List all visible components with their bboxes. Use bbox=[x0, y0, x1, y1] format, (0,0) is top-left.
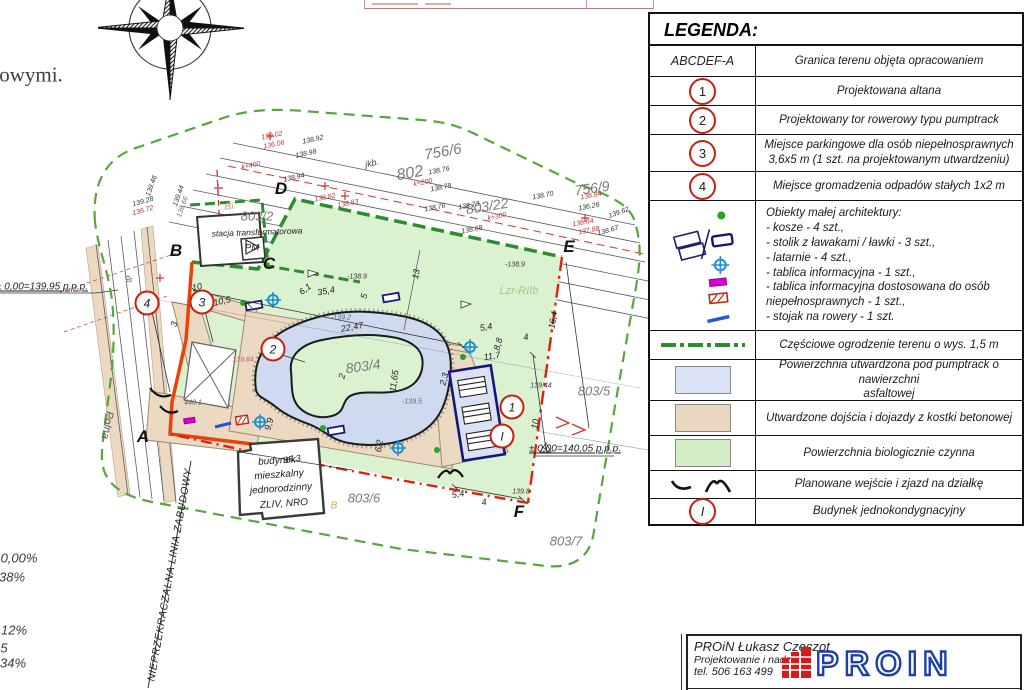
parcel-label: 756/6 bbox=[423, 140, 463, 163]
legend-row-12: IBudynek jednokondygnacyjny bbox=[650, 499, 1022, 524]
plan-marker-1: 1 bbox=[500, 395, 525, 420]
elevation-label: 138.67 bbox=[597, 225, 620, 237]
legend-description: Utwardzone dojścia i dojazdy z kostki be… bbox=[756, 401, 1022, 435]
legend-symbol bbox=[650, 471, 756, 498]
elevation-label: 139.62 bbox=[608, 206, 631, 220]
table-symbol bbox=[674, 229, 710, 260]
dimension-label: 9,9 bbox=[263, 417, 276, 432]
boundary-corner-letter: E bbox=[563, 237, 574, 257]
elevation-label: 139.44 bbox=[530, 383, 551, 390]
elevation-label: 136.26 bbox=[578, 202, 600, 213]
elevation-label: 138.92 bbox=[302, 134, 324, 145]
elevation-label: 139.8 bbox=[512, 489, 530, 496]
dimension-label: 5,4 bbox=[479, 321, 493, 333]
legend-symbol: 1 bbox=[650, 77, 756, 105]
plan-note: ± 0,00=139,95 p.p.p. bbox=[0, 282, 88, 293]
legend-symbol: 2 bbox=[650, 106, 756, 134]
dimension-label: 10 bbox=[529, 418, 541, 430]
boundary-corner-letter: F bbox=[514, 502, 524, 522]
dimension-label: 5,4 bbox=[451, 488, 465, 500]
legend-description: Obiekty małej architektury:- kosze - 4 s… bbox=[756, 201, 1022, 330]
entrance-symbol bbox=[664, 472, 742, 498]
bottom-left-value: 34% bbox=[0, 656, 26, 671]
elevation-label: 138.70 bbox=[532, 191, 554, 202]
boundary-corner-letter: B bbox=[170, 241, 182, 261]
plan-note: jednorodzinny bbox=[250, 481, 313, 496]
plan-note: ZLIV, NRO bbox=[260, 497, 309, 511]
plan-note: Bi bbox=[225, 202, 234, 213]
site-plan-sheet: ABCDEF756/6802756/9803/22803/2803/4803/5… bbox=[0, 0, 1024, 690]
dimension-label: 6,1 bbox=[297, 281, 313, 297]
elevation-label: 138.76 bbox=[428, 166, 450, 177]
elevation-label: 137.88 bbox=[578, 226, 600, 237]
plan-marker-4: 4 bbox=[135, 291, 160, 316]
dimension-label: 22,47 bbox=[340, 320, 364, 334]
proin-logo: PROIN bbox=[780, 644, 1018, 682]
building-icon bbox=[782, 647, 811, 678]
legend-description: Projektowany tor rowerowy typu pumptrack bbox=[756, 106, 1022, 134]
plan-marker-2: 2 bbox=[261, 337, 286, 362]
dimension-label: 11,65 bbox=[388, 369, 401, 392]
boundary-corner-letter: C bbox=[263, 254, 275, 274]
dimension-label: 3 bbox=[169, 320, 180, 327]
accessible-board-symbol bbox=[709, 292, 728, 303]
legend-row-8: Powierzchnia utwardzona pod pumptrack o … bbox=[650, 360, 1022, 401]
elevation-label: 139.84 bbox=[232, 357, 253, 364]
dimension-label: 11,7 bbox=[483, 350, 501, 363]
elevation-label: 138.98 bbox=[295, 148, 317, 159]
elevation-label: 138.83 bbox=[337, 199, 359, 210]
plan-note: mieszkalny bbox=[254, 468, 304, 482]
legend-symbol bbox=[650, 401, 756, 435]
plan-marker-i: I bbox=[490, 424, 515, 449]
elevation-label: -139.2 bbox=[331, 315, 351, 322]
titleblock: PROiN Łukasz Czeczot Projektowanie i nad… bbox=[686, 634, 1022, 690]
dimension-label: 4 bbox=[523, 332, 530, 343]
parcel-label: 803/6 bbox=[348, 491, 381, 506]
legend-row-6: Obiekty małej architektury:- kosze - 4 s… bbox=[650, 201, 1022, 331]
legend-description: Granica terenu objęta opracowaniem bbox=[756, 46, 1022, 76]
dimension-label: 35,4 bbox=[316, 285, 335, 298]
bike-rack-symbol bbox=[707, 316, 729, 321]
elevation-label: 139.46 bbox=[145, 175, 159, 198]
legend-symbol: 4 bbox=[650, 172, 756, 200]
boundary-corner-letter: A bbox=[137, 427, 149, 447]
legend-description: Powierzchnia utwardzona pod pumptrack o … bbox=[756, 360, 1022, 400]
titleblock-outer-line bbox=[681, 634, 682, 690]
parcel-label: 803/2 bbox=[241, 209, 274, 224]
legend-symbol bbox=[650, 201, 756, 330]
bottom-left-value: 12% bbox=[1, 623, 27, 638]
legend-symbol bbox=[650, 331, 756, 359]
elevation-label: 136.06 bbox=[263, 140, 285, 151]
elevation-label: 440.1 bbox=[184, 400, 202, 407]
plan-note: PM bbox=[245, 243, 259, 254]
elevation-label: -138.9 bbox=[505, 262, 525, 269]
bottom-left-value: 38% bbox=[0, 570, 25, 585]
legend-row-1: ABCDEF-AGranica terenu objęta opracowani… bbox=[650, 46, 1022, 77]
plan-marker-3: 3 bbox=[190, 290, 215, 315]
elevation-label: 138.76 bbox=[424, 203, 446, 214]
legend-panel: LEGENDA: ABCDEF-AGranica terenu objęta o… bbox=[648, 12, 1024, 526]
lantern-symbol bbox=[711, 256, 729, 274]
dimension-label: 10,5 bbox=[212, 294, 231, 308]
plan-note: budynek bbox=[258, 454, 296, 468]
logo-text: PROIN bbox=[816, 645, 954, 682]
plan-note: ± 0,00=140,05 p.p.p. bbox=[529, 444, 621, 455]
paragraph-fragment: owymi. bbox=[0, 63, 63, 88]
legend-description: Planowane wejście i zjazd na działkę bbox=[756, 471, 1022, 498]
elevation-label: 138.82 bbox=[314, 193, 336, 204]
small-architecture-symbols bbox=[650, 203, 755, 329]
plan-note: dr bbox=[123, 274, 135, 285]
plan-note: NIEPRZEKRACZALNA LINIA ZABUDOWY bbox=[145, 468, 194, 683]
legend-row-3: 2Projektowany tor rowerowy typu pumptrac… bbox=[650, 106, 1022, 135]
legend-symbol: ABCDEF-A bbox=[650, 46, 756, 76]
elevation-label: k+400 bbox=[241, 161, 261, 172]
elevation-label: -138.9 bbox=[347, 274, 367, 281]
legend-title: LEGENDA: bbox=[650, 14, 1022, 46]
plan-note: jkb. bbox=[364, 157, 380, 170]
legend-symbol bbox=[650, 436, 756, 470]
bottom-left-value: 5 bbox=[0, 641, 7, 656]
bottom-left-value: 0,00% bbox=[1, 551, 38, 566]
dimension-label: 16,4 bbox=[547, 310, 560, 329]
elevation-label: -139.5 bbox=[402, 399, 422, 406]
dimension-label: 13 bbox=[410, 268, 422, 280]
elevation-label: 138.68 bbox=[461, 225, 483, 236]
elevation-label: 138.94 bbox=[283, 172, 305, 183]
plan-note: B bbox=[331, 501, 338, 512]
parcel-label: 803/5 bbox=[578, 384, 611, 399]
legend-description: Powierzchnia biologicznie czynna bbox=[756, 436, 1022, 470]
bin-symbol bbox=[717, 211, 725, 219]
legend-row-11: Planowane wejście i zjazd na działkę bbox=[650, 471, 1022, 499]
legend-symbol: I bbox=[650, 499, 756, 524]
plan-note: Lzr-RIIb bbox=[500, 285, 539, 297]
legend-description: Projektowana altana bbox=[756, 77, 1022, 105]
legend-symbol bbox=[650, 360, 756, 400]
legend-description: Miejsce gromadzenia odpadów stałych 1x2 … bbox=[756, 172, 1022, 200]
info-board-symbol bbox=[709, 277, 726, 286]
legend-symbol: 3 bbox=[650, 135, 756, 171]
legend-row-2: 1Projektowana altana bbox=[650, 77, 1022, 106]
legend-row-9: Utwardzone dojścia i dojazdy z kostki be… bbox=[650, 401, 1022, 436]
parcel-label: 803/4 bbox=[345, 356, 382, 377]
fence-symbol bbox=[659, 340, 747, 350]
plan-note: stacja transformatorowa bbox=[212, 225, 303, 238]
legend-description: Częściowe ogrodzenie terenu o wys. 1,5 m bbox=[756, 331, 1022, 359]
legend-description: Miejsce parkingowe dla osób niepełnospra… bbox=[756, 135, 1022, 171]
dimension-label: 5 bbox=[359, 292, 370, 299]
legend-row-7: Częściowe ogrodzenie terenu o wys. 1,5 m bbox=[650, 331, 1022, 360]
parcel-label: 803/7 bbox=[550, 534, 583, 549]
legend-row-4: 3Miejsce parkingowe dla osób niepełnospr… bbox=[650, 135, 1022, 172]
legend-row-10: Powierzchnia biologicznie czynna bbox=[650, 436, 1022, 471]
dimension-label: 4 bbox=[481, 497, 488, 508]
plan-note: Polna bbox=[99, 410, 116, 440]
legend-description: Budynek jednokondygnacyjny bbox=[756, 499, 1022, 524]
dimension-label: 2,3 bbox=[438, 372, 451, 387]
legend-row-5: 4Miejsce gromadzenia odpadów stałych 1x2… bbox=[650, 172, 1022, 201]
bench-symbol bbox=[712, 233, 733, 246]
dimension-label: 6,2 bbox=[373, 439, 385, 453]
